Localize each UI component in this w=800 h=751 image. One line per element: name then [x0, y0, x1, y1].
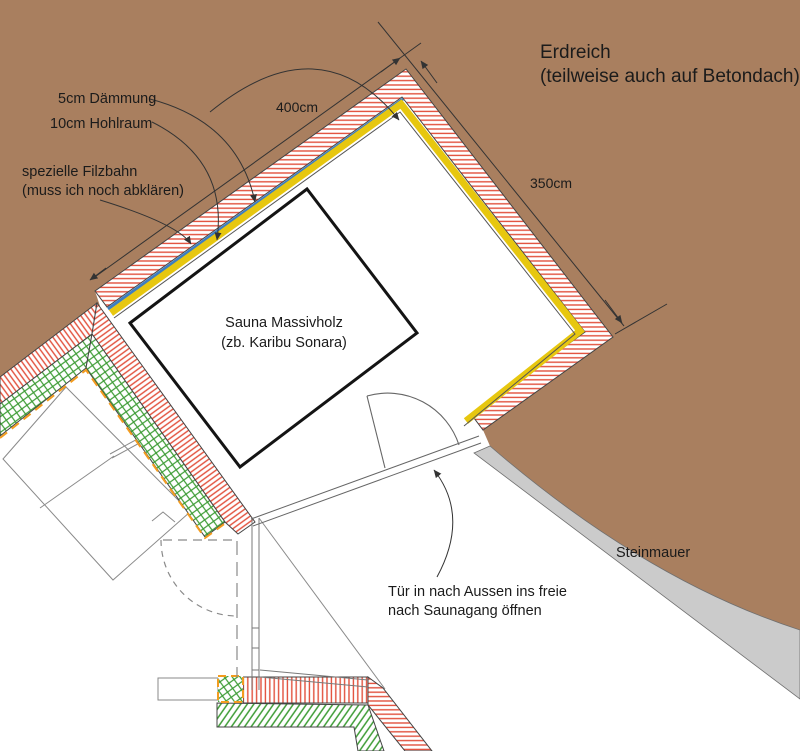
- label-tuer-line1: Tür in nach Aussen ins freie: [388, 584, 567, 600]
- sauna-box-label-line2: (zb. Karibu Sonara): [221, 335, 347, 351]
- plan-drawing: Sauna Massivholz (zb. Karibu Sonara) 400…: [0, 0, 800, 751]
- sauna-box-label-line1: Sauna Massivholz: [225, 315, 343, 331]
- label-erdreich-line1: Erdreich: [540, 42, 611, 63]
- label-filzbahn-line2: (muss ich noch abklären): [22, 183, 184, 199]
- label-steinmauer: Steinmauer: [616, 545, 690, 561]
- label-hohlraum: 10cm Hohlraum: [50, 116, 152, 132]
- label-daemmung: 5cm Dämmung: [58, 91, 156, 107]
- label-tuer-line2: nach Saunagang öffnen: [388, 603, 542, 619]
- plan-canvas: Sauna Massivholz (zb. Karibu Sonara) 400…: [0, 0, 800, 751]
- label-erdreich-line2: (teilweise auch auf Betondach): [540, 66, 800, 87]
- dimension-400-label: 400cm: [276, 99, 318, 115]
- label-filzbahn-line1: spezielle Filzbahn: [22, 164, 137, 180]
- dimension-350-label: 350cm: [530, 175, 572, 191]
